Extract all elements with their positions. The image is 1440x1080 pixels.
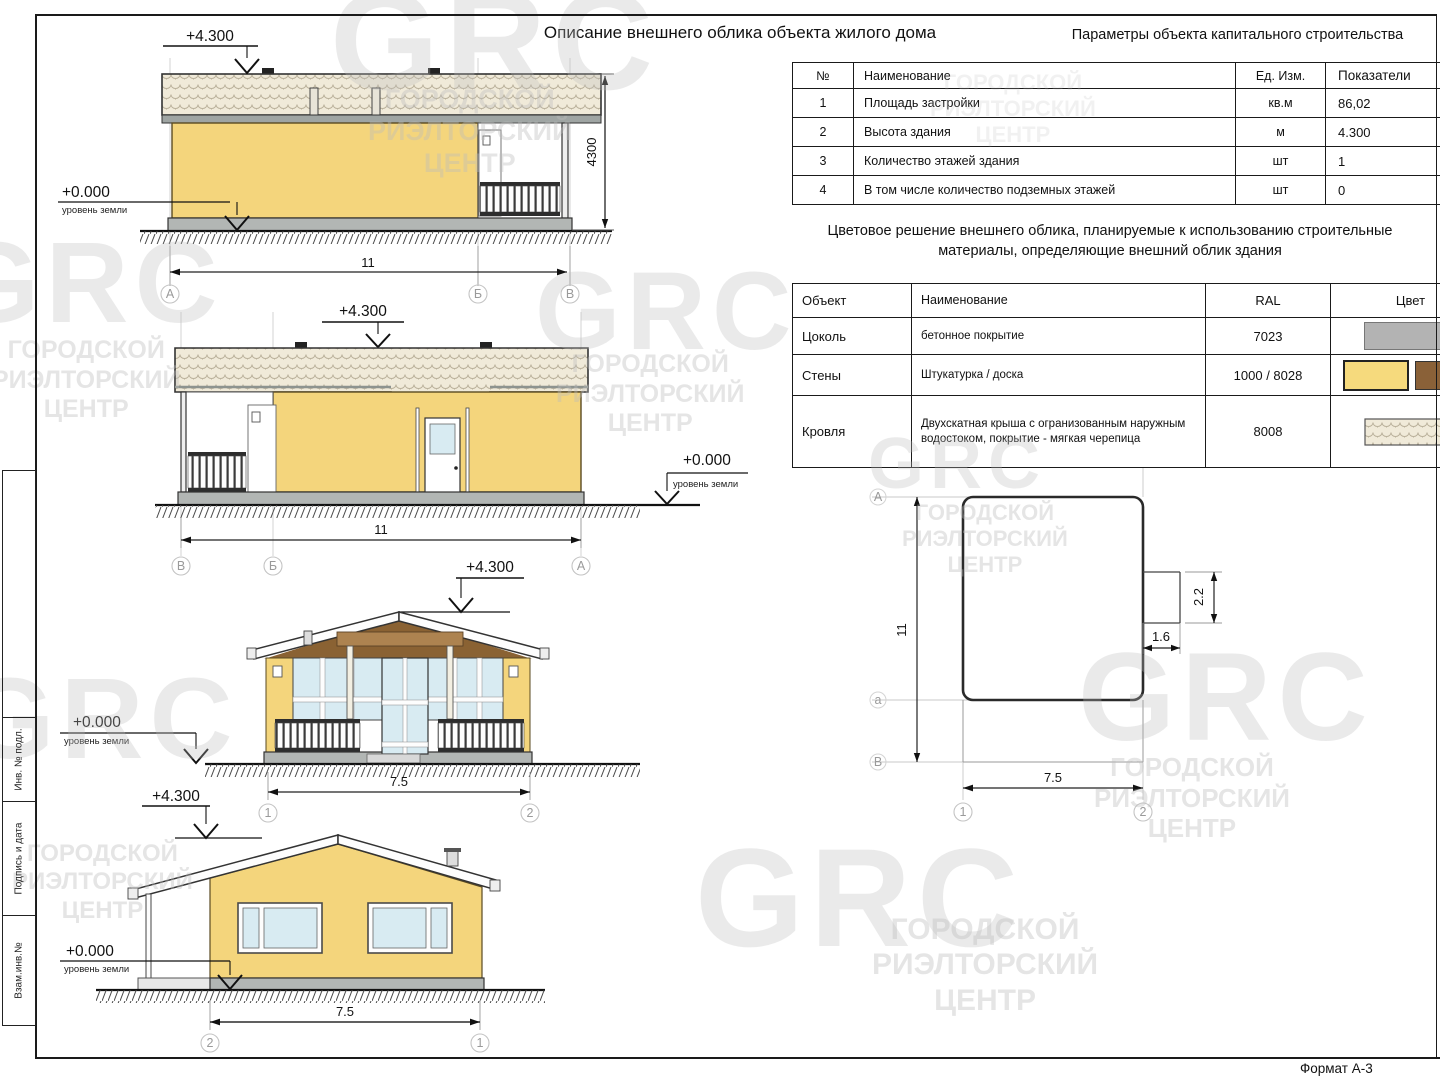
corner-post xyxy=(562,123,568,218)
railing xyxy=(188,452,246,492)
porch-bump xyxy=(1143,572,1180,623)
dim-width-75: 7.5 xyxy=(210,1000,480,1030)
watermark-text-line: РИЭЛТОРСКИЙ xyxy=(872,947,1098,982)
plinth xyxy=(210,978,484,990)
elevation-side-1: +4.300 +0.000 уровень земли 4300 11 xyxy=(40,20,640,310)
color-swatch-shingle xyxy=(1364,418,1440,446)
elevation-gable-2: +4.300 xyxy=(40,785,680,1060)
level-zero-label: +0.000 xyxy=(62,184,110,201)
corner-post xyxy=(181,392,186,492)
row-num: 4 xyxy=(793,176,854,205)
stamp-cell-label: Инв. № подл. xyxy=(14,728,25,790)
params-header-value: Показатели xyxy=(1326,63,1440,89)
watermark-text-line: ЦЕНТР xyxy=(872,983,1098,1018)
axis-label-a: А xyxy=(874,490,883,504)
sheet-border-right xyxy=(1436,14,1437,1058)
level-zero-label: +0.000 xyxy=(66,943,114,960)
level-top-label: +4.300 xyxy=(186,28,234,45)
table-row: 1 Площадь застройки кв.м 86,02 xyxy=(793,89,1440,118)
row-value: 1 xyxy=(1326,147,1440,176)
row-name: бетонное покрытие xyxy=(912,318,1206,355)
dim-11: 11 xyxy=(894,497,920,762)
level-mark-zero: +0.000 уровень земли xyxy=(655,452,748,504)
dim-length-label: 11 xyxy=(361,255,375,270)
porch xyxy=(181,392,276,492)
dim-22: 2.2 xyxy=(1185,572,1222,623)
entry-step xyxy=(367,754,420,763)
params-table-title: Параметры объекта капитального строитель… xyxy=(1040,27,1435,43)
colors-header-name: Наименование xyxy=(912,284,1206,318)
plinth xyxy=(178,492,584,505)
colors-header-object: Объект xyxy=(793,284,912,318)
colors-header-row: Объект Наименование RAL Цвет xyxy=(793,284,1440,318)
porch-slab xyxy=(138,978,210,990)
ground-level-label: уровень земли xyxy=(64,964,129,975)
row-value: 0 xyxy=(1326,176,1440,205)
stamp-cell-label: Взам.инв.№ xyxy=(14,942,25,998)
row-name: Высота здания xyxy=(854,118,1236,147)
building-outline xyxy=(963,497,1143,700)
title-block-side-column: Инв. № подл. Подпись и дата Взам.инв.№ xyxy=(2,470,36,1026)
level-mark-top: +4.300 xyxy=(163,28,259,73)
params-header-row: № Наименование Ед. Изм. Показатели xyxy=(793,63,1440,89)
axis-label-2: 2 xyxy=(1140,805,1147,819)
table-row: 4 В том числе количество подземных этаже… xyxy=(793,176,1440,205)
railing xyxy=(480,182,560,216)
ground xyxy=(96,990,545,1003)
stamp-cell-vzam: Взам.инв.№ xyxy=(3,916,35,1025)
row-ral: 8008 xyxy=(1206,396,1331,468)
row-name: В том числе количество подземных этажей xyxy=(854,176,1236,205)
level-top-label: +4.300 xyxy=(339,303,387,320)
table-row: Цоколь бетонное покрытие 7023 xyxy=(793,318,1440,355)
axis-label-a-small: а xyxy=(875,693,882,707)
level-zero-label: +0.000 xyxy=(683,452,731,469)
watermark-logo: GRC xyxy=(695,835,1024,961)
row-unit: шт xyxy=(1236,147,1326,176)
params-header-num: № xyxy=(793,63,854,89)
params-header-unit: Ед. Изм. xyxy=(1236,63,1326,89)
row-value: 86,02 xyxy=(1326,89,1440,118)
row-object: Стены xyxy=(793,355,912,396)
page-title: Описание внешнего облика объекта жилого … xyxy=(505,23,975,43)
ground-level-label: уровень земли xyxy=(62,205,127,216)
row-num: 2 xyxy=(793,118,854,147)
ground xyxy=(205,764,640,777)
format-label: Формат А-3 xyxy=(1300,1061,1373,1076)
colors-header-color: Цвет xyxy=(1331,284,1440,318)
row-name: Двухскатная крыша с огранизованным наруж… xyxy=(912,396,1206,468)
sheet-border-top xyxy=(35,14,1437,16)
row-name: Количество этажей здания xyxy=(854,147,1236,176)
row-num: 3 xyxy=(793,147,854,176)
table-row: Стены Штукатурка / доска 1000 / 8028 xyxy=(793,355,1440,396)
elevation-side-2: +4.300 xyxy=(40,295,760,585)
dim-75-label: 7.5 xyxy=(1044,770,1062,785)
row-unit: м xyxy=(1236,118,1326,147)
color-swatch-yellow xyxy=(1343,360,1409,391)
level-zero-label: +0.000 xyxy=(73,714,121,731)
wall xyxy=(172,123,478,218)
dim-length-label: 11 xyxy=(374,522,388,537)
params-header-name: Наименование xyxy=(854,63,1236,89)
level-top-label: +4.300 xyxy=(152,788,200,805)
dim-75: 7.5 xyxy=(963,770,1143,791)
veranda-post xyxy=(447,646,453,719)
roof xyxy=(162,68,601,123)
stamp-cell-empty xyxy=(3,471,35,718)
stamp-cell-inv: Инв. № подл. xyxy=(3,718,35,802)
axis-label-v: В xyxy=(874,755,882,769)
stamp-cell-sign: Подпись и дата xyxy=(3,802,35,916)
ground xyxy=(140,231,612,244)
dim-16: 1.6 xyxy=(1143,623,1180,654)
stamp-cell-label: Подпись и дата xyxy=(14,823,25,895)
row-object: Кровля xyxy=(793,396,912,468)
colors-table-title: Цветовое решение внешнего облика, планир… xyxy=(780,222,1440,261)
row-object: Цоколь xyxy=(793,318,912,355)
params-table: № Наименование Ед. Изм. Показатели 1 Пло… xyxy=(792,62,1440,205)
soffit-board xyxy=(337,632,463,646)
axis-markers: 2 1 xyxy=(201,1034,489,1052)
table-row: Кровля Двухскатная крыша с огранизованны… xyxy=(793,396,1440,468)
axis-label-2: 2 xyxy=(207,1036,214,1050)
row-ral: 1000 / 8028 xyxy=(1206,355,1331,396)
ground xyxy=(155,505,700,518)
level-mark-top: +4.300 xyxy=(399,559,524,612)
row-value: 4.300 xyxy=(1326,118,1440,147)
level-mark-top: +4.300 xyxy=(142,788,262,838)
dim-length-11: 11 xyxy=(170,246,570,286)
row-ral: 7023 xyxy=(1206,318,1331,355)
table-row: 2 Высота здания м 4.300 xyxy=(793,118,1440,147)
colors-header-ral: RAL xyxy=(1206,284,1331,318)
drawing-sheet: +4.300 +0.000 уровень земли 4300 11 xyxy=(0,0,1440,1080)
row-name: Площадь застройки xyxy=(854,89,1236,118)
colors-title-line2: материалы, определяющие внешний облик зд… xyxy=(780,242,1440,262)
color-swatch-gray xyxy=(1364,322,1440,350)
colors-title-line1: Цветовое решение внешнего облика, планир… xyxy=(780,222,1440,242)
level-mark-top: +4.300 xyxy=(322,303,404,347)
row-unit: шт xyxy=(1236,176,1326,205)
dim-22-label: 2.2 xyxy=(1191,588,1206,606)
level-mark-zero: +0.000 уровень земли xyxy=(60,714,208,763)
row-unit: кв.м xyxy=(1236,89,1326,118)
window-right xyxy=(368,903,452,953)
dim-16-label: 1.6 xyxy=(1152,629,1170,644)
watermark-text-line: ГОРОДСКОЙ xyxy=(872,912,1098,947)
dim-length-11: 11 xyxy=(181,518,581,548)
terrace-outline xyxy=(963,700,1143,762)
porch xyxy=(478,123,568,218)
dim-height-label: 4300 xyxy=(584,138,599,167)
dim-width-label: 7.5 xyxy=(336,1004,354,1019)
watermark-text: ГОРОДСКОЙ РИЭЛТОРСКИЙ ЦЕНТР xyxy=(872,912,1098,1018)
row-num: 1 xyxy=(793,89,854,118)
porch-post xyxy=(146,894,151,978)
ground-level-label: уровень земли xyxy=(673,479,738,490)
axis-label-1: 1 xyxy=(960,805,967,819)
table-row: 3 Количество этажей здания шт 1 xyxy=(793,147,1440,176)
level-top-label: +4.300 xyxy=(466,559,514,576)
sheet-border-bottom xyxy=(35,1057,1440,1059)
axis-label-1: 1 xyxy=(477,1036,484,1050)
porch xyxy=(138,894,210,990)
plan-configuration: 11 2.2 1.6 7.5 А а В xyxy=(855,450,1275,830)
colors-table: Объект Наименование RAL Цвет Цоколь бето… xyxy=(792,283,1440,468)
ground-level-label: уровень земли xyxy=(64,736,129,747)
veranda-post xyxy=(347,646,353,719)
dim-11-label: 11 xyxy=(894,623,909,637)
window-left xyxy=(238,903,322,953)
row-name: Штукатурка / доска xyxy=(912,355,1206,396)
